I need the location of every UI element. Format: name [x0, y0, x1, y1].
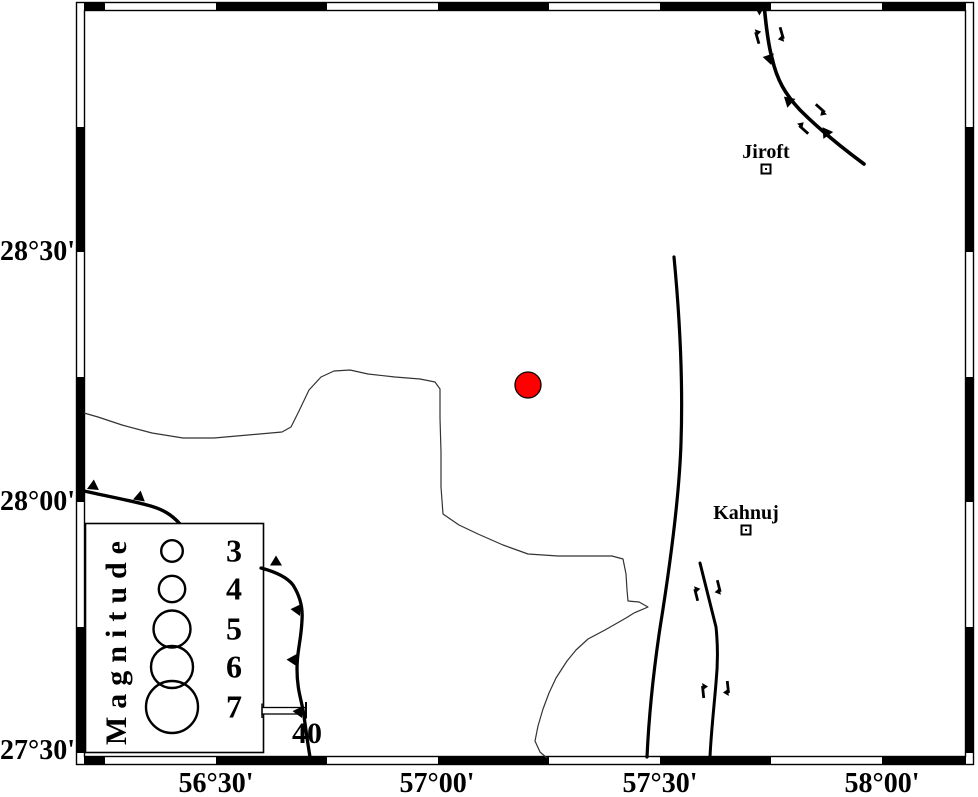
thrust-fault-west-upper-line: [84, 491, 180, 524]
y-axis-label: 27°30': [0, 737, 68, 765]
x-axis-label: 58°00': [845, 770, 920, 797]
strike-slip-arrow-icon: [812, 104, 827, 118]
thrust-tooth-icon: [87, 479, 100, 490]
legend-title: Magnitude: [102, 533, 132, 745]
kahnuj-fault: [694, 563, 729, 757]
strike-slip-arrow-icon: [712, 580, 721, 596]
epicenter-marker: [515, 372, 541, 398]
earthquake-map-figure: 28°30' 28°00' 27°30' 56°30' 57°00' 57°30…: [0, 0, 978, 797]
legend-magnitude-value: 7: [226, 690, 242, 722]
y-axis-label: 28°30': [0, 238, 68, 266]
city-marker-kahnuj: [742, 526, 751, 535]
thrust-tooth-icon: [133, 490, 147, 502]
thrust-fault-northeast: [751, 0, 864, 164]
strike-slip-arrow-icon: [722, 681, 729, 696]
main-fault-line: [647, 257, 682, 757]
legend-magnitude-value: 4: [226, 572, 242, 604]
legend-magnitude-value: 5: [226, 612, 242, 644]
x-axis-label: 56°30': [179, 770, 254, 797]
thrust-tooth-icon: [286, 654, 296, 666]
strike-slip-arrow-icon: [694, 585, 703, 601]
x-axis-label: 57°00': [400, 770, 475, 797]
strike-slip-arrow-icon: [755, 28, 764, 44]
main-fault: [647, 257, 682, 757]
strike-slip-arrow-icon: [702, 682, 709, 697]
city-label-kahnuj: Kahnuj: [713, 503, 779, 523]
thrust-fault-west-upper: [84, 479, 180, 524]
map-canvas: [0, 0, 978, 797]
strike-slip-arrow-icon: [775, 27, 784, 43]
city-label-jiroft: Jiroft: [742, 142, 789, 162]
city-marker-jiroft: [762, 165, 771, 174]
legend-magnitude-value: 6: [226, 650, 242, 682]
thrust-tooth-icon: [290, 603, 301, 616]
scale-bar-label: 40: [292, 719, 322, 749]
y-axis-label: 28°00': [0, 488, 68, 516]
thrust-tooth-icon: [270, 556, 282, 566]
legend-magnitude-value: 3: [226, 534, 242, 566]
x-axis-label: 57°30': [623, 770, 698, 797]
